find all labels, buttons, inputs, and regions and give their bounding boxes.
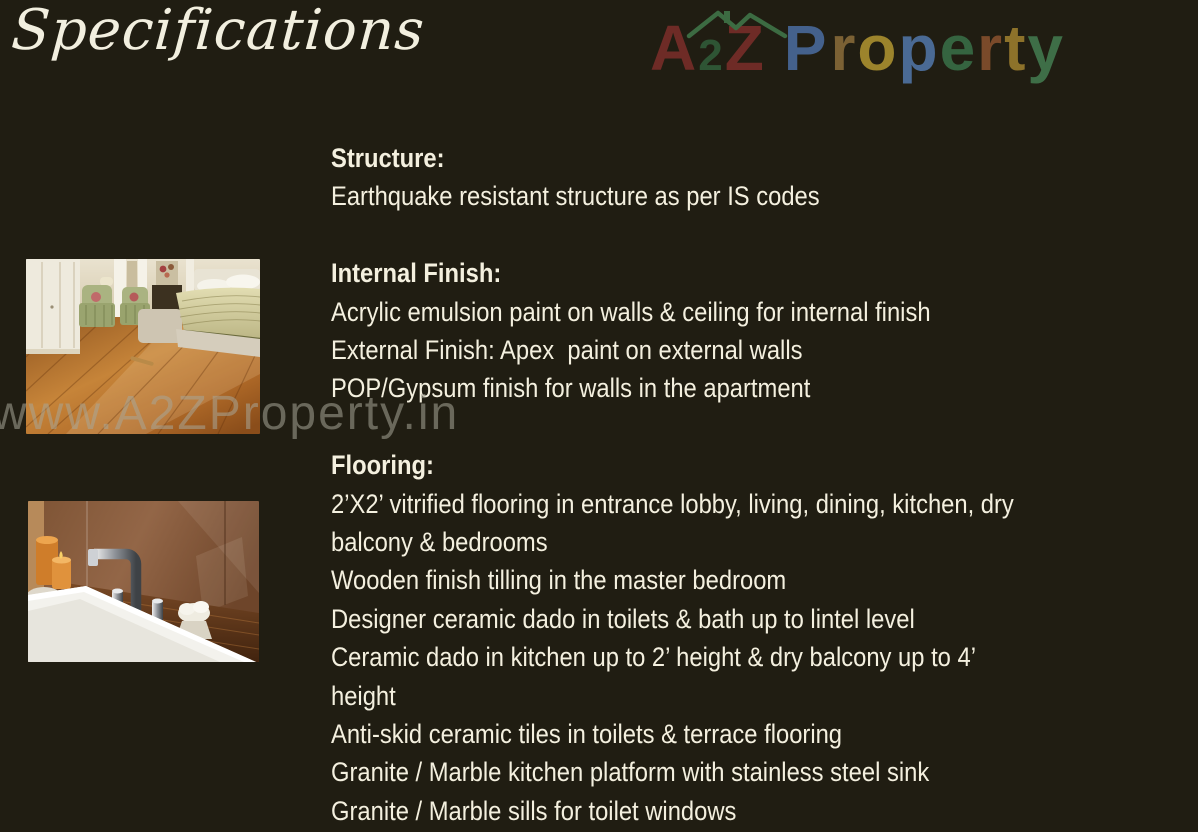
logo-letter: e	[940, 12, 978, 84]
spec-line: Acrylic emulsion paint on walls & ceilin…	[331, 293, 1198, 331]
spec-line: Earthquake resistant structure as per IS…	[331, 177, 1198, 215]
section-heading: Flooring:	[331, 446, 1198, 484]
logo-letter: t	[1004, 12, 1027, 84]
spec-line: height	[331, 677, 1198, 715]
bathtub-chrome-faucet-photo	[28, 501, 259, 662]
logo-letter: p	[898, 12, 939, 84]
logo-letter: P	[784, 12, 831, 84]
house-roof-icon	[686, 8, 790, 40]
spec-line: Granite / Marble kitchen platform with s…	[331, 753, 1198, 791]
slide: { "page": { "title": "Specifications", "…	[0, 0, 1198, 832]
spec-line: Wooden finish tilling in the master bedr…	[331, 561, 1198, 599]
spec-line: External Finish: Apex paint on external …	[331, 331, 1198, 369]
section-heading: Structure:	[331, 139, 1198, 177]
spec-line: 2’X2’ vitrified flooring in entrance lob…	[331, 485, 1198, 523]
spec-line: Granite / Marble sills for toilet window…	[331, 792, 1198, 830]
section-internal-finish: Internal Finish: Acrylic emulsion paint …	[331, 254, 1198, 408]
spec-line: POP/Gypsum finish for walls in the apart…	[331, 369, 1198, 407]
page-title: Specifications	[9, 0, 426, 63]
section-heading: Internal Finish:	[331, 254, 1198, 292]
spec-line: Ceramic dado in kitchen up to 2’ height …	[331, 638, 1198, 676]
section-flooring: Flooring: 2’X2’ vitrified flooring in en…	[331, 446, 1198, 830]
spec-line: balcony & bedrooms	[331, 523, 1198, 561]
spec-content: Structure: Earthquake resistant structur…	[331, 139, 1198, 830]
section-structure: Structure: Earthquake resistant structur…	[331, 139, 1198, 216]
logo-letter: r	[977, 12, 1004, 84]
spec-line: Designer ceramic dado in toilets & bath …	[331, 600, 1198, 638]
spec-line: Anti-skid ceramic tiles in toilets & ter…	[331, 715, 1198, 753]
brand-logo: A2ZProperty	[650, 12, 1065, 86]
logo-letter: y	[1027, 12, 1065, 84]
logo-letter: r	[830, 12, 857, 84]
logo-letter: o	[857, 12, 898, 84]
watermark: www.A2ZProperty.in	[0, 386, 459, 441]
